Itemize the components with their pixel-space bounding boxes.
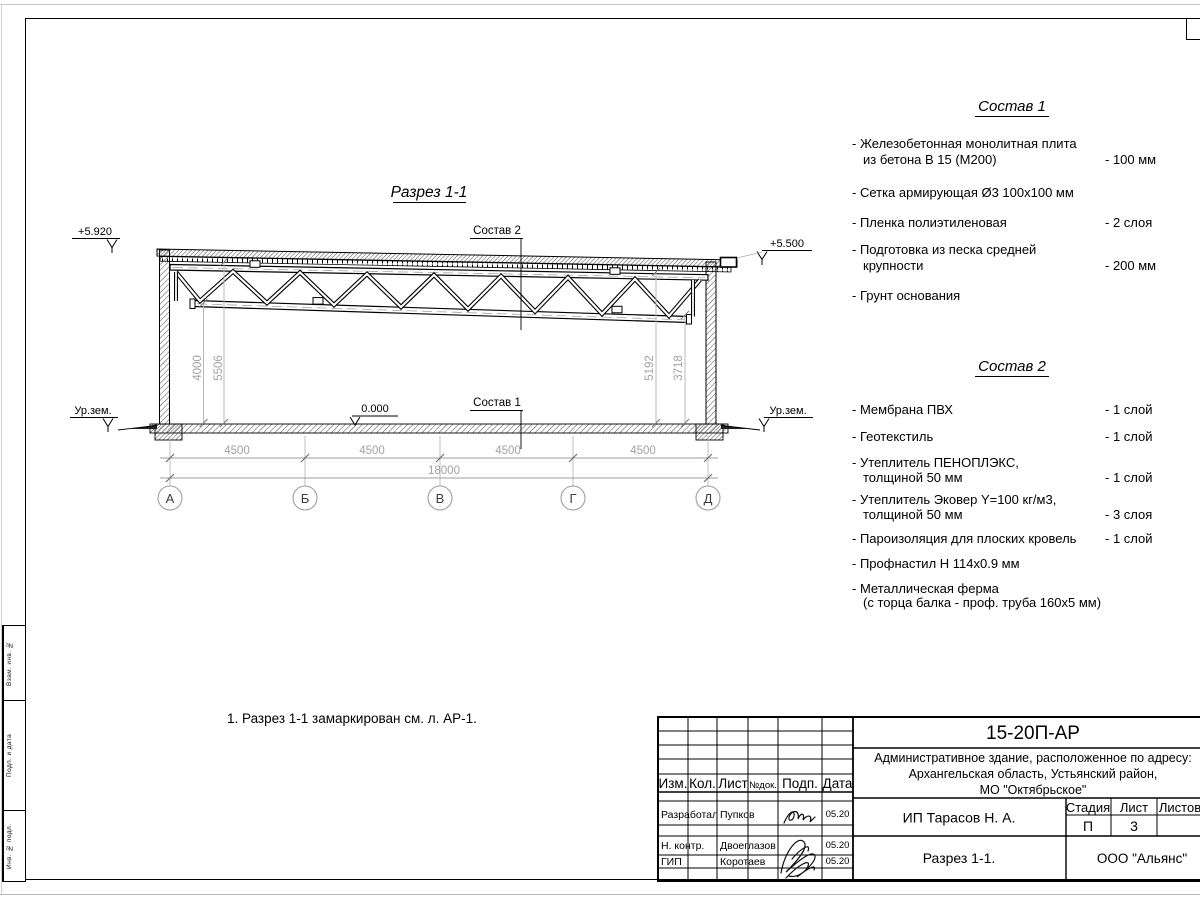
drawing-title-text: Разрез 1-1	[391, 184, 468, 201]
axis-b: Б	[301, 491, 310, 506]
client-name: ИП Тарасов Н. А.	[903, 810, 1016, 826]
composition-2-title: Состав 2	[852, 358, 1172, 375]
elevation-arrow-icon	[759, 419, 769, 427]
axis-a: А	[166, 491, 175, 506]
row-developer-name: Пупков	[720, 809, 755, 821]
sheet-label: Лист	[1120, 800, 1148, 815]
comp1-leader: Состав 1	[470, 397, 523, 449]
signature-gip	[781, 840, 815, 878]
gusset-plate	[610, 268, 620, 275]
col-data: Дата	[823, 776, 853, 791]
stage-label: Стадия	[1066, 800, 1110, 815]
elevation-mark-right: +5.500	[737, 238, 812, 265]
dim-4500-3: 4500	[495, 445, 521, 457]
drawing-title: Разрез 1-1	[391, 184, 468, 203]
comp2-line: - Утеплитель ПЕНОПЛЭКС,	[852, 455, 1019, 470]
right-wall	[706, 262, 716, 424]
col-kol: Кол.	[689, 776, 716, 791]
comp2-line: (с торца балка - проф. труба 160х5 мм)	[852, 595, 1101, 610]
floor-slab	[118, 424, 760, 440]
dim-4000: 4000	[192, 355, 204, 381]
dim-4500-2: 4500	[359, 445, 385, 457]
elevation-left-text: +5.920	[78, 226, 112, 238]
composition-1-title: Состав 1	[852, 98, 1172, 115]
col-podp: Подп.	[782, 776, 818, 791]
axis-g: Г	[569, 491, 576, 506]
col-izm: Изм.	[659, 776, 688, 791]
comp1-line: - Подготовка из песка средней	[852, 242, 1036, 257]
drawing-name: Разрез 1-1.	[923, 850, 996, 866]
composition-2-list: Состав 2 - Мембрана ПВХ- 1 слой - Геотек…	[852, 358, 1197, 618]
left-wall	[160, 250, 170, 424]
ground-level-mark-right: Ур.зем.	[759, 405, 813, 432]
zero-level-mark: 0.000	[350, 403, 398, 425]
blueprint-sheet: { "drawing": { "title": "Разрез 1-1", "e…	[0, 0, 1200, 900]
ground-level-mark-left: Ур.зем.	[70, 405, 118, 432]
project-address-1: Административное здание, расположенное п…	[874, 751, 1191, 765]
comp2-line: толщиной 50 мм	[852, 507, 963, 522]
sheet-note: 1. Разрез 1-1 замаркирован см. л. АР-1.	[227, 711, 477, 726]
gusset-plate	[250, 261, 260, 268]
gusset-plate	[612, 306, 622, 313]
zero-mark-text: 0.000	[361, 403, 389, 415]
footing-left	[155, 424, 182, 440]
composition-1-list: Состав 1 - Железобетонная монолитная пли…	[852, 98, 1197, 358]
dim-18000: 18000	[428, 465, 460, 477]
roof-end-plate	[721, 258, 737, 268]
elevation-right-text: +5.500	[770, 238, 804, 250]
comp2-line: - Пароизоляция для плоских кровель	[852, 531, 1076, 546]
comp1-line: - Железобетонная монолитная плита	[852, 136, 1077, 151]
comp1-line: крупности	[852, 258, 923, 273]
axis-d: Д	[704, 491, 713, 506]
row-developer-date: 05.20	[826, 809, 850, 820]
horizontal-dimensions: 4500 4500 4500 4500 18000	[160, 436, 718, 486]
comp2-line: толщиной 50 мм	[852, 470, 963, 485]
comp1-leader-text: Состав 1	[473, 397, 521, 409]
comp1-line: - Сетка армирующая Ø3 100х100 мм	[852, 185, 1074, 200]
axis-bubbles: А Б В Г Д	[158, 486, 720, 510]
footing-right	[696, 424, 723, 440]
dim-5506: 5506	[213, 355, 225, 381]
dim-4500-1: 4500	[224, 445, 250, 457]
row-gip-date: 05.20	[826, 856, 850, 867]
row-ncontr-name: Двоеглазов	[720, 840, 776, 852]
sheets-label: Листов	[1159, 800, 1200, 815]
project-address-3: МО "Октябрьское"	[980, 783, 1087, 797]
row-gip-role: ГИП	[661, 856, 682, 868]
title-block: 15-20П-АР Административное здание, распо…	[655, 715, 1200, 884]
col-list: Лист	[718, 776, 747, 791]
comp2-line: - Металлическая ферма	[852, 581, 999, 596]
comp1-line: - Грунт основания	[852, 288, 960, 303]
project-address-2: Архангельская область, Устьянский район,	[909, 767, 1158, 781]
doc-code: 15-20П-АР	[986, 723, 1080, 744]
sheet-value: 3	[1130, 818, 1138, 834]
company-name: ООО "Альянс"	[1097, 851, 1187, 866]
elevation-arrow-icon	[103, 419, 113, 427]
comp1-line: - Пленка полиэтиленовая	[852, 215, 1007, 230]
elevation-mark-left: +5.920	[72, 226, 120, 253]
elevation-arrow-icon	[107, 240, 117, 248]
ground-left-text: Ур.зем.	[74, 405, 111, 417]
row-ncontr-date: 05.20	[826, 840, 850, 851]
stage-value: П	[1083, 818, 1093, 834]
dim-4500-4: 4500	[630, 445, 656, 457]
gusset-plate	[313, 298, 323, 305]
comp2-line: - Утеплитель Эковер Y=100 кг/м3,	[852, 492, 1056, 507]
col-ndok: №док.	[749, 780, 777, 791]
row-ncontr-role: Н. контр.	[661, 840, 704, 852]
row-gip-name: Коротаев	[720, 856, 766, 868]
ground-right-text: Ур.зем.	[769, 405, 806, 417]
comp2-line: - Геотекстиль	[852, 429, 933, 444]
axis-v: В	[436, 491, 445, 506]
comp2-leader-text: Состав 2	[473, 225, 521, 237]
row-developer-role: Разработал	[661, 809, 718, 821]
signature-developer	[784, 811, 815, 823]
comp2-line: - Мембрана ПВХ	[852, 402, 953, 417]
dim-5192: 5192	[644, 355, 656, 381]
dim-3718: 3718	[673, 355, 685, 381]
comp1-line: из бетона В 15 (М200)	[852, 152, 997, 167]
comp2-line: - Профнастил Н 114х0.9 мм	[852, 556, 1020, 571]
